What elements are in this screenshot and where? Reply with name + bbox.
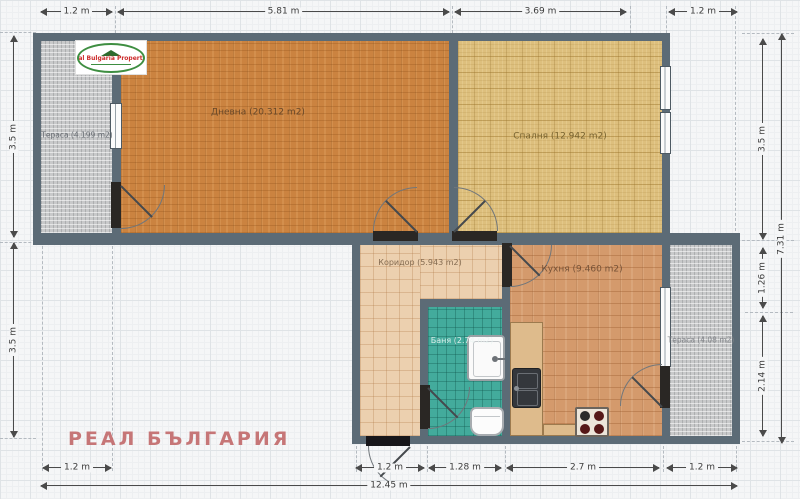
dim-top-living: 5.81 m xyxy=(117,7,450,17)
extension-line xyxy=(42,246,43,471)
dim-bottom-terrace-right: 1.2 m xyxy=(666,463,738,473)
watermark-text: РЕАЛ БЪЛГАРИЯ xyxy=(68,428,290,450)
faucet-handle-icon xyxy=(498,358,505,360)
burner-icon xyxy=(594,411,604,421)
dim-left-lower: 3.5 m xyxy=(9,242,19,438)
dim-right-total: 7.31 m xyxy=(777,33,787,444)
logo-title: Real Bulgaria Properties xyxy=(77,56,145,63)
dim-label: 7.31 m xyxy=(778,220,787,258)
extension-line xyxy=(663,446,664,472)
wall-bath-top xyxy=(420,299,510,307)
dim-label: 1.2 m xyxy=(61,464,93,473)
kitchen-sink xyxy=(512,368,541,408)
toilet-tank xyxy=(474,410,500,417)
extension-line xyxy=(735,6,736,236)
room-label-kitchen: Кухня (9.460 m2) xyxy=(541,266,622,275)
dim-right-middle: 1.26 m xyxy=(758,247,768,309)
toilet xyxy=(470,407,504,436)
dim-right-upper: 3.5 m xyxy=(758,38,768,240)
kitchen-sink-basin xyxy=(517,373,538,389)
dim-right-lower: 2.14 m xyxy=(758,315,768,437)
window-kitchen xyxy=(660,287,671,367)
logo-tagline-line xyxy=(91,64,131,65)
kitchen-sink-basin xyxy=(517,390,538,406)
dim-label: 1.2 m xyxy=(61,8,93,17)
dim-top-bedroom: 3.69 m xyxy=(454,7,627,17)
dim-label: 3.5 m xyxy=(10,324,19,356)
room-corridor-upper xyxy=(420,245,502,299)
dim-left-upper: 3.5 m xyxy=(9,35,19,238)
floor-plan-canvas: Тераса (4.199 m2) Дневна (20.312 m2) Спа… xyxy=(0,0,800,499)
extension-line xyxy=(666,6,667,33)
dim-bottom-bath: 1.28 m xyxy=(428,463,502,473)
dim-label: 2.14 m xyxy=(759,357,768,395)
burner-icon xyxy=(594,424,604,434)
dim-label: 12.45 m xyxy=(367,482,410,491)
window-bedroom-1 xyxy=(660,66,671,110)
room-label-living: Дневна (20.312 m2) xyxy=(211,109,305,118)
kitchen-counter-bottom xyxy=(543,424,577,436)
door-entrance xyxy=(366,436,410,446)
dim-label: 1.2 m xyxy=(686,464,718,473)
dim-bottom-terrace-left: 1.2 m xyxy=(42,463,112,473)
room-label-terrace-left: Тераса (4.199 m2) xyxy=(41,131,112,139)
window-terrace-living xyxy=(110,103,122,149)
wall-bottom xyxy=(352,436,740,444)
dim-top-terrace-right: 1.2 m xyxy=(668,7,738,17)
dim-label: 1.2 m xyxy=(374,464,406,473)
room-label-terrace-right: Тераса (4.08 m2) xyxy=(668,336,735,344)
wall-left-outer xyxy=(33,33,41,245)
dim-top-terrace-left: 1.2 m xyxy=(40,7,113,17)
dim-bottom-total: 12.45 m xyxy=(40,481,738,491)
faucet-icon xyxy=(514,386,519,391)
stove xyxy=(575,407,609,437)
window-bedroom-2 xyxy=(660,112,671,154)
door-living-corridor xyxy=(373,231,418,241)
dim-bottom-entrance: 1.2 m xyxy=(355,463,425,473)
extension-line xyxy=(115,6,116,33)
extension-line xyxy=(630,6,631,33)
dim-label: 3.5 m xyxy=(10,121,19,153)
extension-line xyxy=(452,6,453,33)
room-label-bath: Баня (2.74 m2) xyxy=(431,337,493,345)
room-label-bedroom: Спалня (12.942 m2) xyxy=(513,133,606,142)
dim-bottom-kitchen: 2.7 m xyxy=(506,463,660,473)
door-terrace-living xyxy=(111,182,121,228)
door-bedroom xyxy=(452,231,497,241)
burner-icon xyxy=(580,411,590,421)
agency-logo: Real Bulgaria Properties xyxy=(75,40,147,75)
dim-label: 1.28 m xyxy=(446,464,484,473)
dim-label: 3.69 m xyxy=(522,8,560,17)
extension-line xyxy=(0,32,36,33)
wall-corridor-left xyxy=(352,233,360,444)
burner-icon xyxy=(580,424,590,434)
logo-ellipse: Real Bulgaria Properties xyxy=(77,43,145,73)
dim-label: 1.2 m xyxy=(687,8,719,17)
dim-label: 1.26 m xyxy=(759,259,768,297)
extension-line xyxy=(0,438,36,439)
dim-label: 2.7 m xyxy=(567,464,599,473)
room-corridor-lower xyxy=(360,245,420,436)
dim-label: 5.81 m xyxy=(265,8,303,17)
dim-label: 3.5 m xyxy=(759,123,768,155)
room-label-corridor: Коридор (5.943 m2) xyxy=(378,259,461,267)
